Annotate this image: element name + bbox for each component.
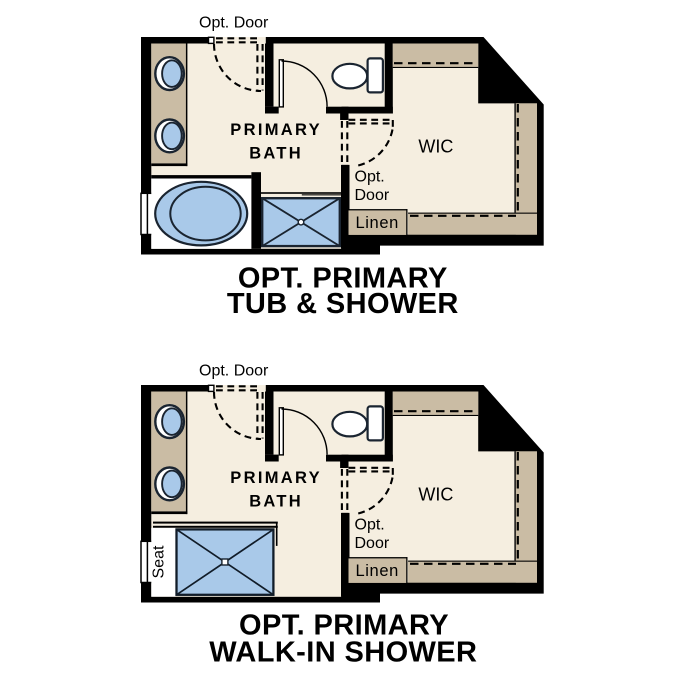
svg-text:Seat: Seat	[151, 545, 168, 578]
svg-text:WALK-IN SHOWER: WALK-IN SHOWER	[209, 636, 477, 668]
svg-text:TUB & SHOWER: TUB & SHOWER	[227, 288, 459, 320]
